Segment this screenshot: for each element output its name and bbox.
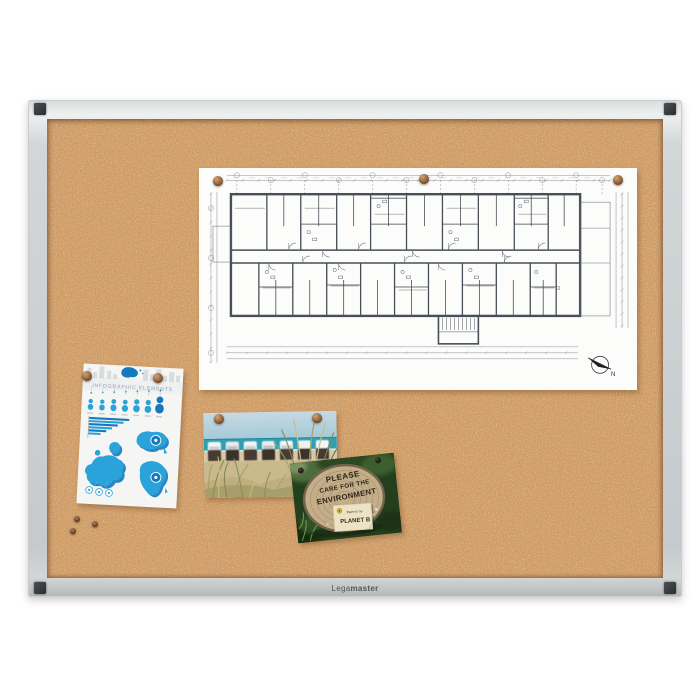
push-pin (213, 176, 223, 186)
brand-logo-bold: master (350, 584, 378, 593)
corner-cap (664, 103, 676, 115)
corner-cap (34, 582, 46, 594)
country-map-icon (121, 367, 144, 379)
infographic-graphic: INFOGRAPHIC ELEMENTS (76, 363, 183, 508)
environment-card: PLEASE CARE FOR THE ENVIRONMENT there is… (290, 453, 402, 543)
europe-map (84, 441, 127, 493)
loose-push-pin (92, 521, 98, 527)
corner-cap (664, 582, 676, 594)
push-pin (214, 414, 224, 424)
usa-map (136, 431, 169, 454)
brand-logo: Legamaster (331, 585, 378, 593)
brand-logo-light: Lega (331, 584, 350, 593)
infographic-paper: INFOGRAPHIC ELEMENTS (76, 363, 183, 508)
floor-plan-drawing: N (199, 168, 637, 390)
africa-map (138, 460, 169, 498)
loose-push-pin (74, 516, 80, 522)
push-pin (153, 373, 163, 383)
push-pin (419, 174, 429, 184)
product-photo: Legamaster N (0, 0, 700, 700)
push-pin (613, 175, 623, 185)
floor-plan-paper: N (199, 168, 637, 390)
push-pin (312, 413, 322, 423)
loose-push-pin (70, 528, 76, 534)
corner-cap (34, 103, 46, 115)
sticky-note: there is no PLANET B (333, 503, 375, 534)
push-pin (82, 371, 92, 381)
north-label: N (611, 372, 615, 378)
environment-photo: PLEASE CARE FOR THE ENVIRONMENT there is… (290, 453, 402, 543)
plan-generated (208, 173, 628, 363)
bar-chart (88, 416, 129, 440)
north-arrow-icon: N (588, 356, 615, 377)
